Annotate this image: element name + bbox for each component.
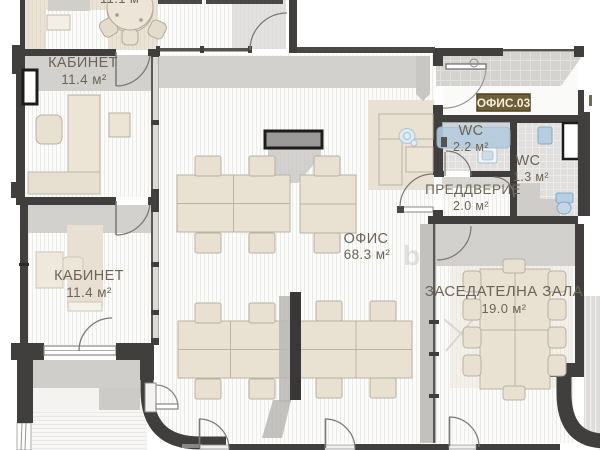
svg-text:WC: WC — [459, 123, 484, 139]
svg-text:ПРЕДДВЕРИЕ: ПРЕДДВЕРИЕ — [425, 182, 521, 197]
svg-text:КАБИНЕТ: КАБИНЕТ — [54, 268, 124, 284]
svg-text:КАБИНЕТ: КАБИНЕТ — [48, 55, 118, 71]
svg-text:11.1 м²: 11.1 м² — [100, 0, 144, 6]
svg-text:68.3 м²: 68.3 м² — [344, 247, 391, 262]
svg-text:ОФИС: ОФИС — [344, 231, 389, 247]
svg-text:ОФИС.03: ОФИС.03 — [477, 96, 531, 110]
svg-text:11.4 м²: 11.4 м² — [66, 285, 112, 300]
svg-text:11.4 м²: 11.4 м² — [61, 72, 107, 87]
svg-text:2.0 м²: 2.0 м² — [453, 199, 489, 213]
svg-text:2.2 м²: 2.2 м² — [453, 140, 489, 154]
svg-text:19.0 м²: 19.0 м² — [482, 301, 527, 316]
svg-text:WC: WC — [516, 153, 541, 169]
svg-text:ЗАСЕДАТЕЛНА ЗАЛА: ЗАСЕДАТЕЛНА ЗАЛА — [425, 283, 583, 300]
